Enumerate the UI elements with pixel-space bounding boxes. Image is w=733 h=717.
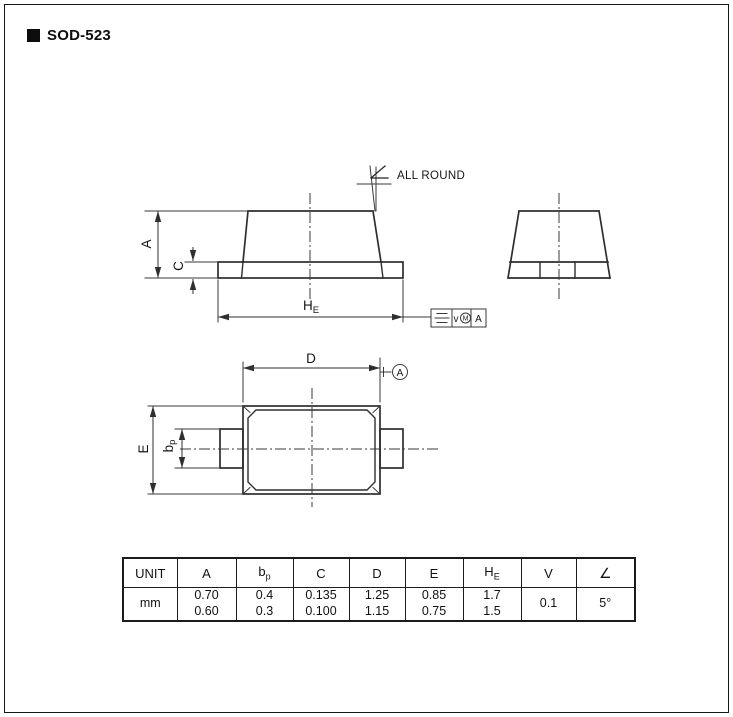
datum-letter: A	[397, 368, 404, 379]
label-E: E	[136, 444, 151, 453]
label-C: C	[171, 261, 186, 271]
cell-unit: mm	[123, 588, 177, 622]
label-D: D	[306, 351, 316, 366]
fcf-tolerance-value: v	[454, 314, 459, 325]
datum-leader	[380, 368, 391, 377]
datasheet-page: SOD-523 ALL ROUND A C	[0, 0, 733, 717]
draft-angle-lines	[357, 166, 391, 211]
all-round-label: ALL ROUND	[397, 170, 465, 182]
all-round-callout: ALL ROUND	[357, 166, 465, 211]
col-header-angle: ∠	[576, 558, 635, 588]
cell-c: 0.135 0.100	[293, 588, 349, 622]
symmetry-symbol-icon	[435, 314, 449, 323]
cell-a: 0.70 0.60	[177, 588, 236, 622]
cell-v: 0.1	[521, 588, 576, 622]
feature-control-frame: v M A	[431, 309, 486, 327]
col-header-e: E	[405, 558, 463, 588]
angle-symbol-icon	[371, 166, 388, 178]
col-header-he: HE	[463, 558, 521, 588]
end-view	[508, 193, 610, 302]
cell-bp: 0.4 0.3	[236, 588, 293, 622]
dimensions-table: UNIT A bp C D E HE V ∠ mm 0.70 0.60 0.4 …	[122, 557, 636, 622]
fcf-datum-ref: A	[475, 314, 482, 325]
datum-a-flag: A	[380, 365, 408, 380]
side-view-dimensions: A C HE	[139, 211, 431, 322]
col-header-bp: bp	[236, 558, 293, 588]
col-header-c: C	[293, 558, 349, 588]
cell-he: 1.7 1.5	[463, 588, 521, 622]
cell-e: 0.85 0.75	[405, 588, 463, 622]
label-bp: bp	[161, 440, 178, 453]
table-header-row: UNIT A bp C D E HE V ∠	[123, 558, 635, 588]
plan-view-dimensions: D E bp A	[136, 351, 408, 494]
cell-angle: 5°	[576, 588, 635, 622]
label-HE: HE	[303, 298, 319, 316]
end-view-lead-dividers	[540, 262, 575, 278]
col-header-v: V	[521, 558, 576, 588]
fcf-modifier-m: M	[463, 316, 469, 323]
col-header-unit: UNIT	[123, 558, 177, 588]
extension-lines	[148, 358, 380, 494]
extension-lines	[145, 211, 431, 322]
body-edge-continuation	[242, 262, 384, 278]
col-header-d: D	[349, 558, 405, 588]
molded-body	[243, 211, 381, 262]
col-header-a: A	[177, 558, 236, 588]
cell-d: 1.25 1.15	[349, 588, 405, 622]
table-value-row: mm 0.70 0.60 0.4 0.3 0.135 0.100 1.25 1.…	[123, 588, 635, 622]
label-A: A	[139, 239, 154, 248]
